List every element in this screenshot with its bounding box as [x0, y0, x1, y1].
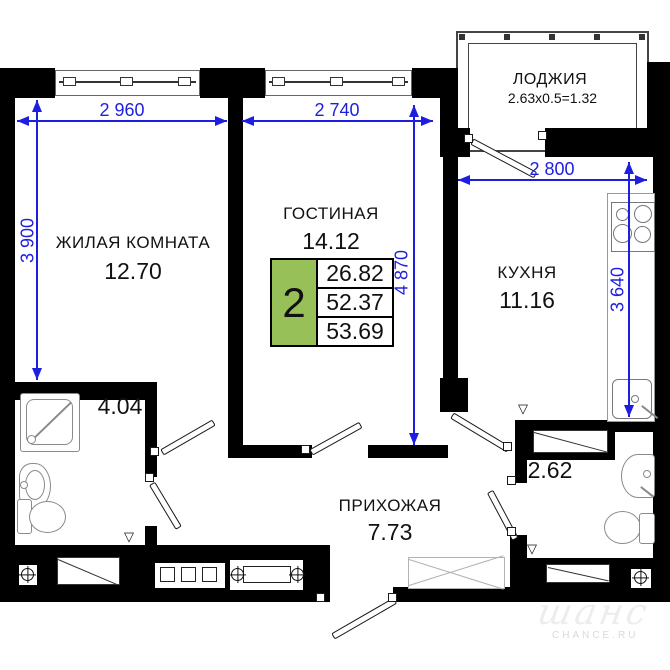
- wall-segment: [545, 128, 670, 157]
- dimension-label: 2 740: [287, 100, 387, 121]
- floor-plan: ▽ ▽ ▽ 2 960 2 740 2 800 3 900 4 870 3 64…: [0, 0, 670, 670]
- living-area-cell: 26.82: [316, 258, 394, 289]
- room-area-wc: 2.62: [505, 457, 595, 484]
- wall-segment: [510, 535, 527, 602]
- room-label-living: ЖИЛАЯ КОМНАТА: [38, 233, 228, 253]
- door-leaf: [160, 419, 215, 455]
- wall-segment: [228, 445, 312, 458]
- wall-segment: [145, 526, 157, 545]
- wall-segment: [228, 98, 243, 447]
- dimension-label: 3 900: [18, 191, 39, 291]
- entrance-door-leaf: [331, 597, 397, 639]
- window-handle-icon: [272, 77, 285, 86]
- wall-segment: [200, 68, 265, 98]
- wall-segment: [368, 445, 448, 458]
- screw-icon: [291, 568, 304, 581]
- apartment-card: 2 26.82 52.37 53.69: [270, 258, 394, 347]
- room-label-kitchen: КУХНЯ: [432, 263, 622, 283]
- room-label-loggia: ЛОДЖИЯ: [480, 71, 620, 89]
- door-leaf: [309, 422, 362, 456]
- door-leaf: [149, 482, 182, 530]
- room-area-living: 12.70: [38, 258, 228, 285]
- window-handle-icon: [120, 77, 133, 86]
- wall-segment: [443, 98, 458, 378]
- screw-icon: [231, 568, 244, 581]
- window-handle-icon: [178, 77, 191, 86]
- wall-segment: [440, 378, 468, 412]
- wall-segment: [653, 128, 670, 602]
- vent-triangle-icon: ▽: [527, 542, 537, 555]
- toilet-icon: [604, 511, 641, 544]
- wall-segment: [647, 62, 670, 130]
- wall-segment: [393, 587, 510, 602]
- room-area-hallway: 7.73: [295, 519, 485, 546]
- door-leaf: [450, 412, 510, 452]
- wall-segment: [412, 68, 458, 98]
- area-cell: 52.37: [316, 287, 394, 318]
- room-calc-loggia: 2.63x0.5=1.32: [480, 90, 625, 106]
- rooms-count-cell: 2: [270, 258, 318, 347]
- room-area-bathroom: 4.04: [75, 393, 165, 420]
- room-area-lounge: 14.12: [236, 228, 426, 255]
- room-label-lounge: ГОСТИНАЯ: [236, 204, 426, 224]
- window-handle-icon: [392, 77, 405, 86]
- dimension-label: 2 960: [72, 100, 172, 121]
- room-label-hallway: ПРИХОЖАЯ: [295, 496, 485, 516]
- wall-segment: [0, 68, 55, 98]
- wall-segment: [0, 68, 15, 602]
- window-handle-icon: [330, 77, 343, 86]
- room-area-kitchen: 11.16: [432, 287, 622, 314]
- watermark-logo: шанс: [534, 592, 653, 633]
- dimension-label: 2 800: [502, 159, 602, 180]
- total-area-cell: 53.69: [316, 316, 394, 347]
- window-handle-icon: [63, 77, 76, 86]
- watermark-caption: CHANCE.RU: [552, 630, 638, 641]
- vent-triangle-icon: ▽: [124, 530, 134, 543]
- vent-triangle-icon: ▽: [518, 402, 528, 415]
